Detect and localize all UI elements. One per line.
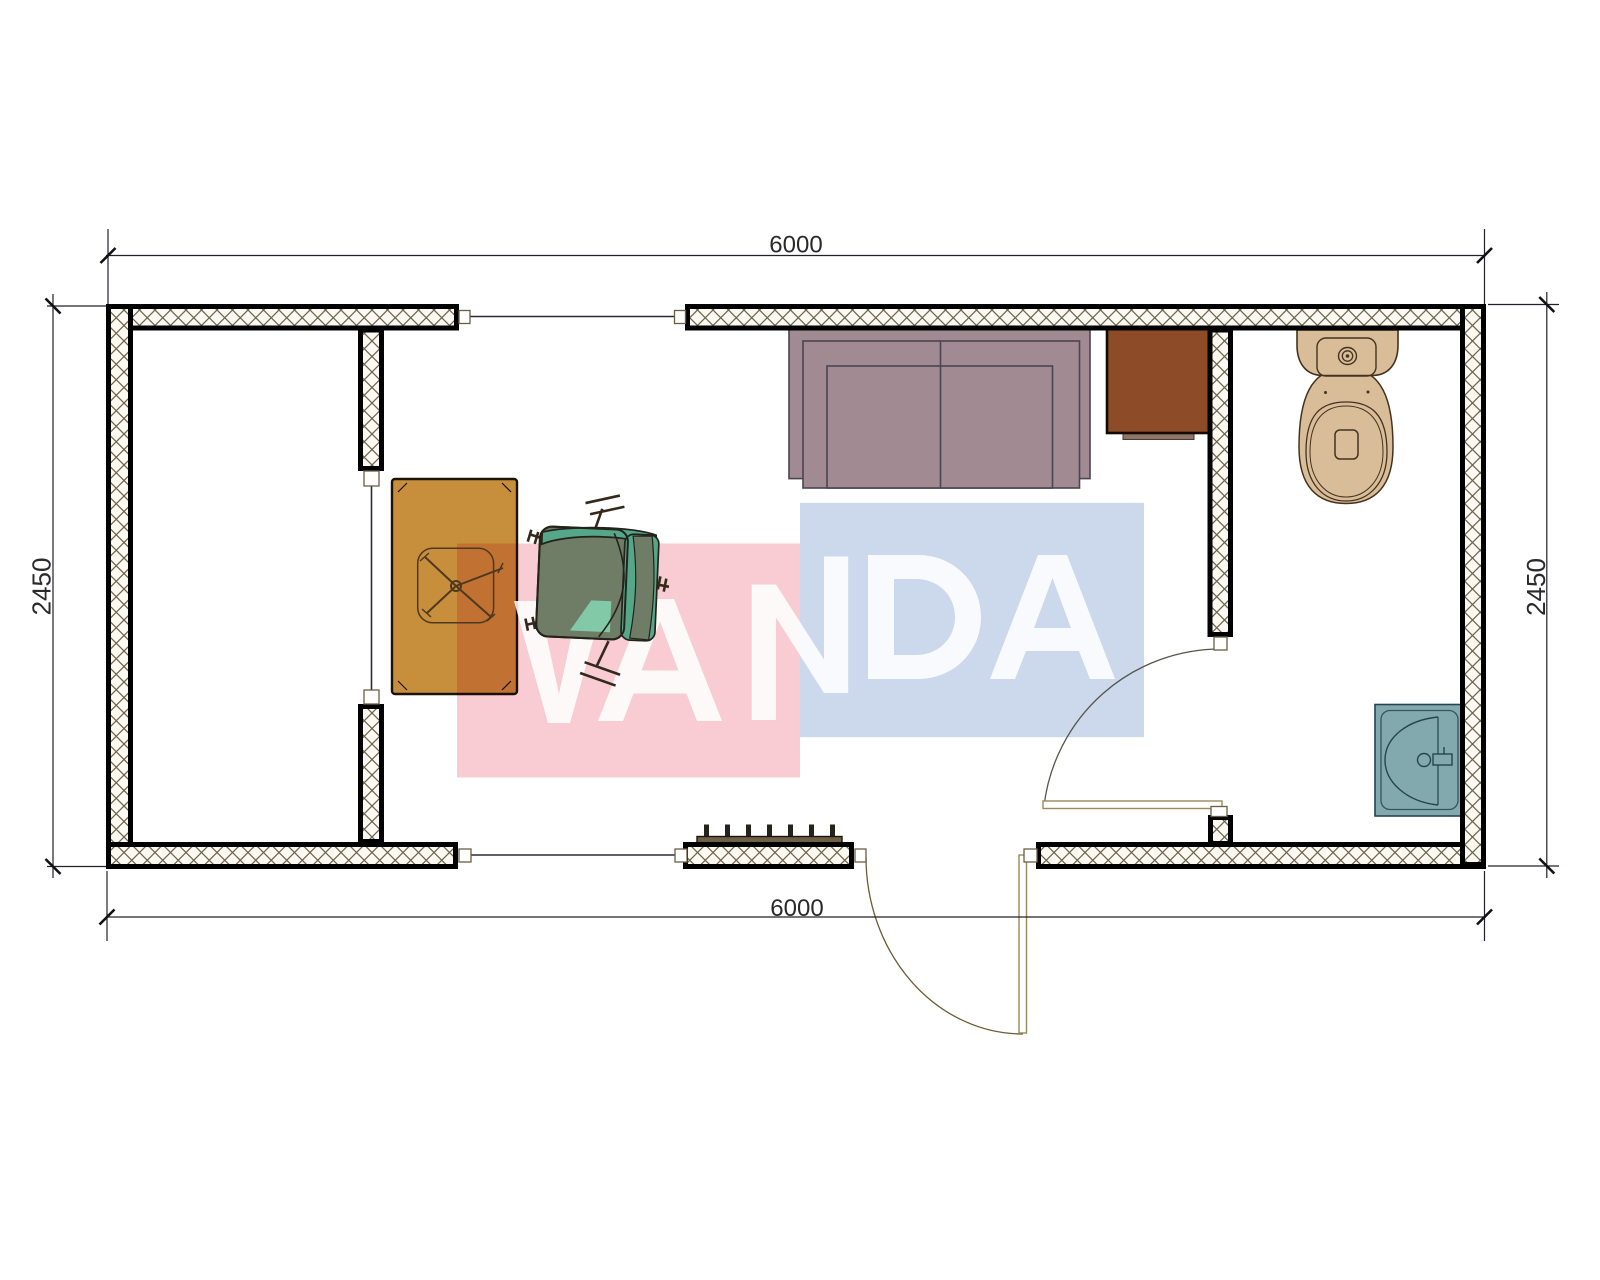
svg-text:2450: 2450	[1521, 558, 1551, 616]
svg-text:6000: 6000	[770, 895, 823, 922]
svg-text:6000: 6000	[769, 232, 822, 259]
svg-text:2450: 2450	[27, 558, 57, 616]
